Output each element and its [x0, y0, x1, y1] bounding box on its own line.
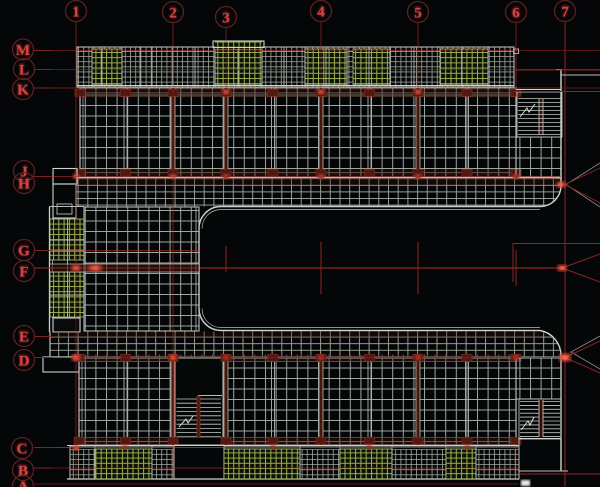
- svg-text:1: 1: [72, 5, 80, 21]
- svg-text:L: L: [19, 63, 29, 79]
- svg-text:M: M: [16, 43, 30, 59]
- svg-text:F: F: [19, 265, 28, 281]
- svg-text:C: C: [17, 442, 28, 458]
- svg-text:D: D: [19, 354, 30, 370]
- svg-text:7: 7: [561, 5, 569, 21]
- svg-text:6: 6: [512, 6, 520, 22]
- svg-text:A: A: [18, 480, 29, 487]
- svg-text:5: 5: [414, 6, 422, 22]
- svg-text:H: H: [18, 177, 30, 193]
- svg-text:3: 3: [222, 11, 230, 27]
- svg-text:G: G: [18, 244, 30, 260]
- svg-text:4: 4: [317, 5, 325, 21]
- svg-text:B: B: [18, 464, 28, 480]
- svg-text:K: K: [17, 83, 29, 99]
- svg-text:E: E: [19, 330, 29, 346]
- svg-text:2: 2: [169, 6, 177, 22]
